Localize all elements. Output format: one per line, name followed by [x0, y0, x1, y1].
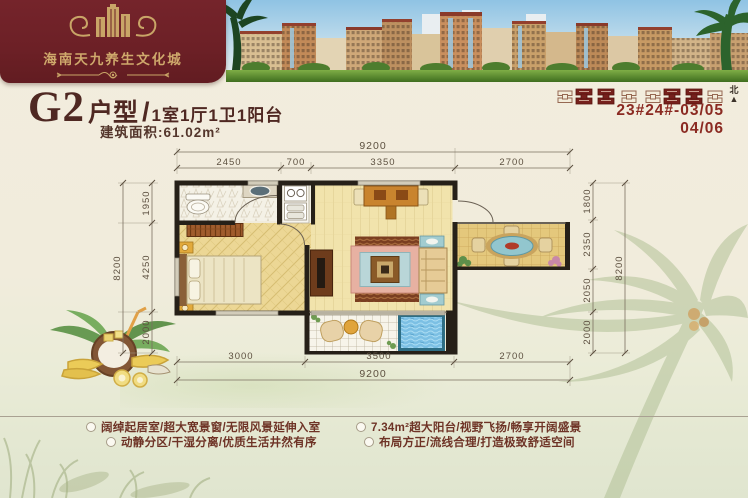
unit-numbers-line1: 23#24#-03/05: [540, 102, 724, 120]
patio-table: [344, 320, 358, 334]
feature-item: 布局方正/流线合理/打造极致舒适空间: [364, 434, 575, 450]
city-photo: [226, 0, 748, 82]
tv: [317, 258, 325, 288]
svg-text:1950: 1950: [141, 190, 152, 215]
feature-text: 阔绰起居室/超大宽景窗/无限风景延伸入室: [101, 419, 320, 435]
north-arrow-icon: ▲: [727, 95, 741, 103]
balcony-chair: [539, 238, 552, 252]
north-indicator: 北 ▲: [727, 86, 741, 103]
feature-text: 7.34m²超大阳台/视野飞扬/畅享开阔盛景: [371, 419, 581, 435]
flourish-icon: [53, 69, 173, 81]
brand-logo-icon: [38, 3, 188, 43]
unit-area: 建筑面积:61.02m²: [100, 121, 221, 141]
bullet-circle-icon: [86, 422, 96, 432]
wardrobe: [187, 224, 243, 237]
feature-item: 阔绰起居室/超大宽景窗/无限风景延伸入室: [86, 419, 320, 435]
divider: [0, 416, 748, 417]
unit-code: G2: [28, 86, 85, 129]
svg-text:2700: 2700: [499, 351, 524, 362]
svg-text:3500: 3500: [366, 351, 391, 362]
pillow: [189, 259, 200, 278]
bullet-circle-icon: [364, 437, 374, 447]
svg-text:4250: 4250: [141, 254, 152, 279]
svg-text:1800: 1800: [582, 188, 593, 213]
unit-numbers-line2: 04/06: [540, 120, 724, 138]
toilet: [187, 200, 209, 214]
feature-item: 7.34m²超大阳台/视野飞扬/畅享开阔盛景: [356, 419, 581, 435]
svg-text:2050: 2050: [582, 277, 593, 302]
bullet-circle-icon: [106, 437, 116, 447]
feature-text: 布局方正/流线合理/打造极致舒适空间: [379, 434, 575, 450]
bath-window: [248, 181, 278, 185]
svg-text:8200: 8200: [112, 255, 123, 280]
svg-text:2000: 2000: [141, 319, 152, 344]
dining-table: [364, 186, 418, 206]
unit-numbers: 23#24#-03/05 04/06: [540, 102, 724, 138]
svg-text:2000: 2000: [582, 319, 593, 344]
headboard: [179, 254, 187, 306]
svg-text:2450: 2450: [216, 157, 241, 168]
pillow: [189, 281, 200, 300]
bedroom-side-window: [175, 258, 179, 296]
feature-item: 动静分区/干湿分离/优质生活井然有序: [106, 434, 317, 450]
svg-text:700: 700: [287, 157, 306, 168]
svg-text:3350: 3350: [370, 157, 395, 168]
svg-text:2350: 2350: [582, 231, 593, 256]
brand-name: 海南天九养生文化城: [0, 48, 226, 68]
dining-chair: [354, 189, 365, 205]
dining-chair: [417, 189, 428, 205]
svg-text:8200: 8200: [614, 255, 625, 280]
balcony-door: [458, 201, 493, 222]
svg-text:3000: 3000: [228, 351, 253, 362]
balcony-chair: [472, 238, 485, 252]
svg-text:9200: 9200: [359, 368, 386, 380]
feature-text: 动静分区/干湿分离/优质生活井然有序: [121, 434, 317, 450]
bedroom-window: [216, 311, 278, 315]
floor-plan: 9200 2450 700 3350 2700 3000 3500 2700 9…: [108, 138, 652, 408]
brand-banner: 海南天九养生文化城: [0, 0, 226, 83]
svg-text:9200: 9200: [359, 140, 386, 152]
washbasin: [250, 186, 270, 196]
svg-text:2700: 2700: [499, 157, 524, 168]
runner-rug: [355, 237, 419, 246]
poster: 海南天九养生文化城: [0, 0, 748, 498]
runner-rug: [355, 294, 419, 303]
bullet-circle-icon: [356, 422, 366, 432]
living-window: [358, 181, 420, 185]
